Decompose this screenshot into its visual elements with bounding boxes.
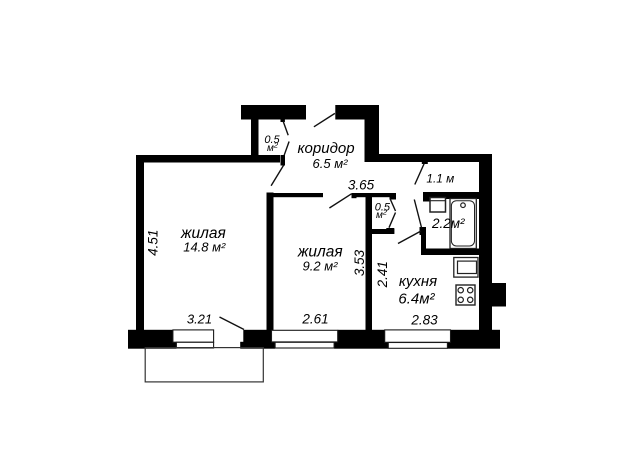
- svg-text:кухня: кухня: [399, 273, 437, 290]
- svg-text:14.8 м²: 14.8 м²: [183, 240, 226, 255]
- svg-text:2.41: 2.41: [375, 261, 390, 288]
- svg-text:коридор: коридор: [297, 140, 354, 157]
- svg-text:2.2м²: 2.2м²: [431, 216, 465, 231]
- svg-text:2.83: 2.83: [410, 313, 438, 328]
- svg-text:3.21: 3.21: [187, 312, 212, 327]
- svg-text:1.1 м: 1.1 м: [426, 172, 454, 186]
- svg-text:4.51: 4.51: [146, 230, 161, 256]
- svg-text:6.5 м²: 6.5 м²: [313, 156, 349, 171]
- svg-text:3.53: 3.53: [352, 249, 367, 276]
- svg-text:2.61: 2.61: [301, 312, 328, 327]
- svg-text:6.4м²: 6.4м²: [398, 291, 435, 308]
- svg-text:9.2 м²: 9.2 м²: [303, 258, 339, 273]
- svg-text:3.65: 3.65: [348, 178, 375, 193]
